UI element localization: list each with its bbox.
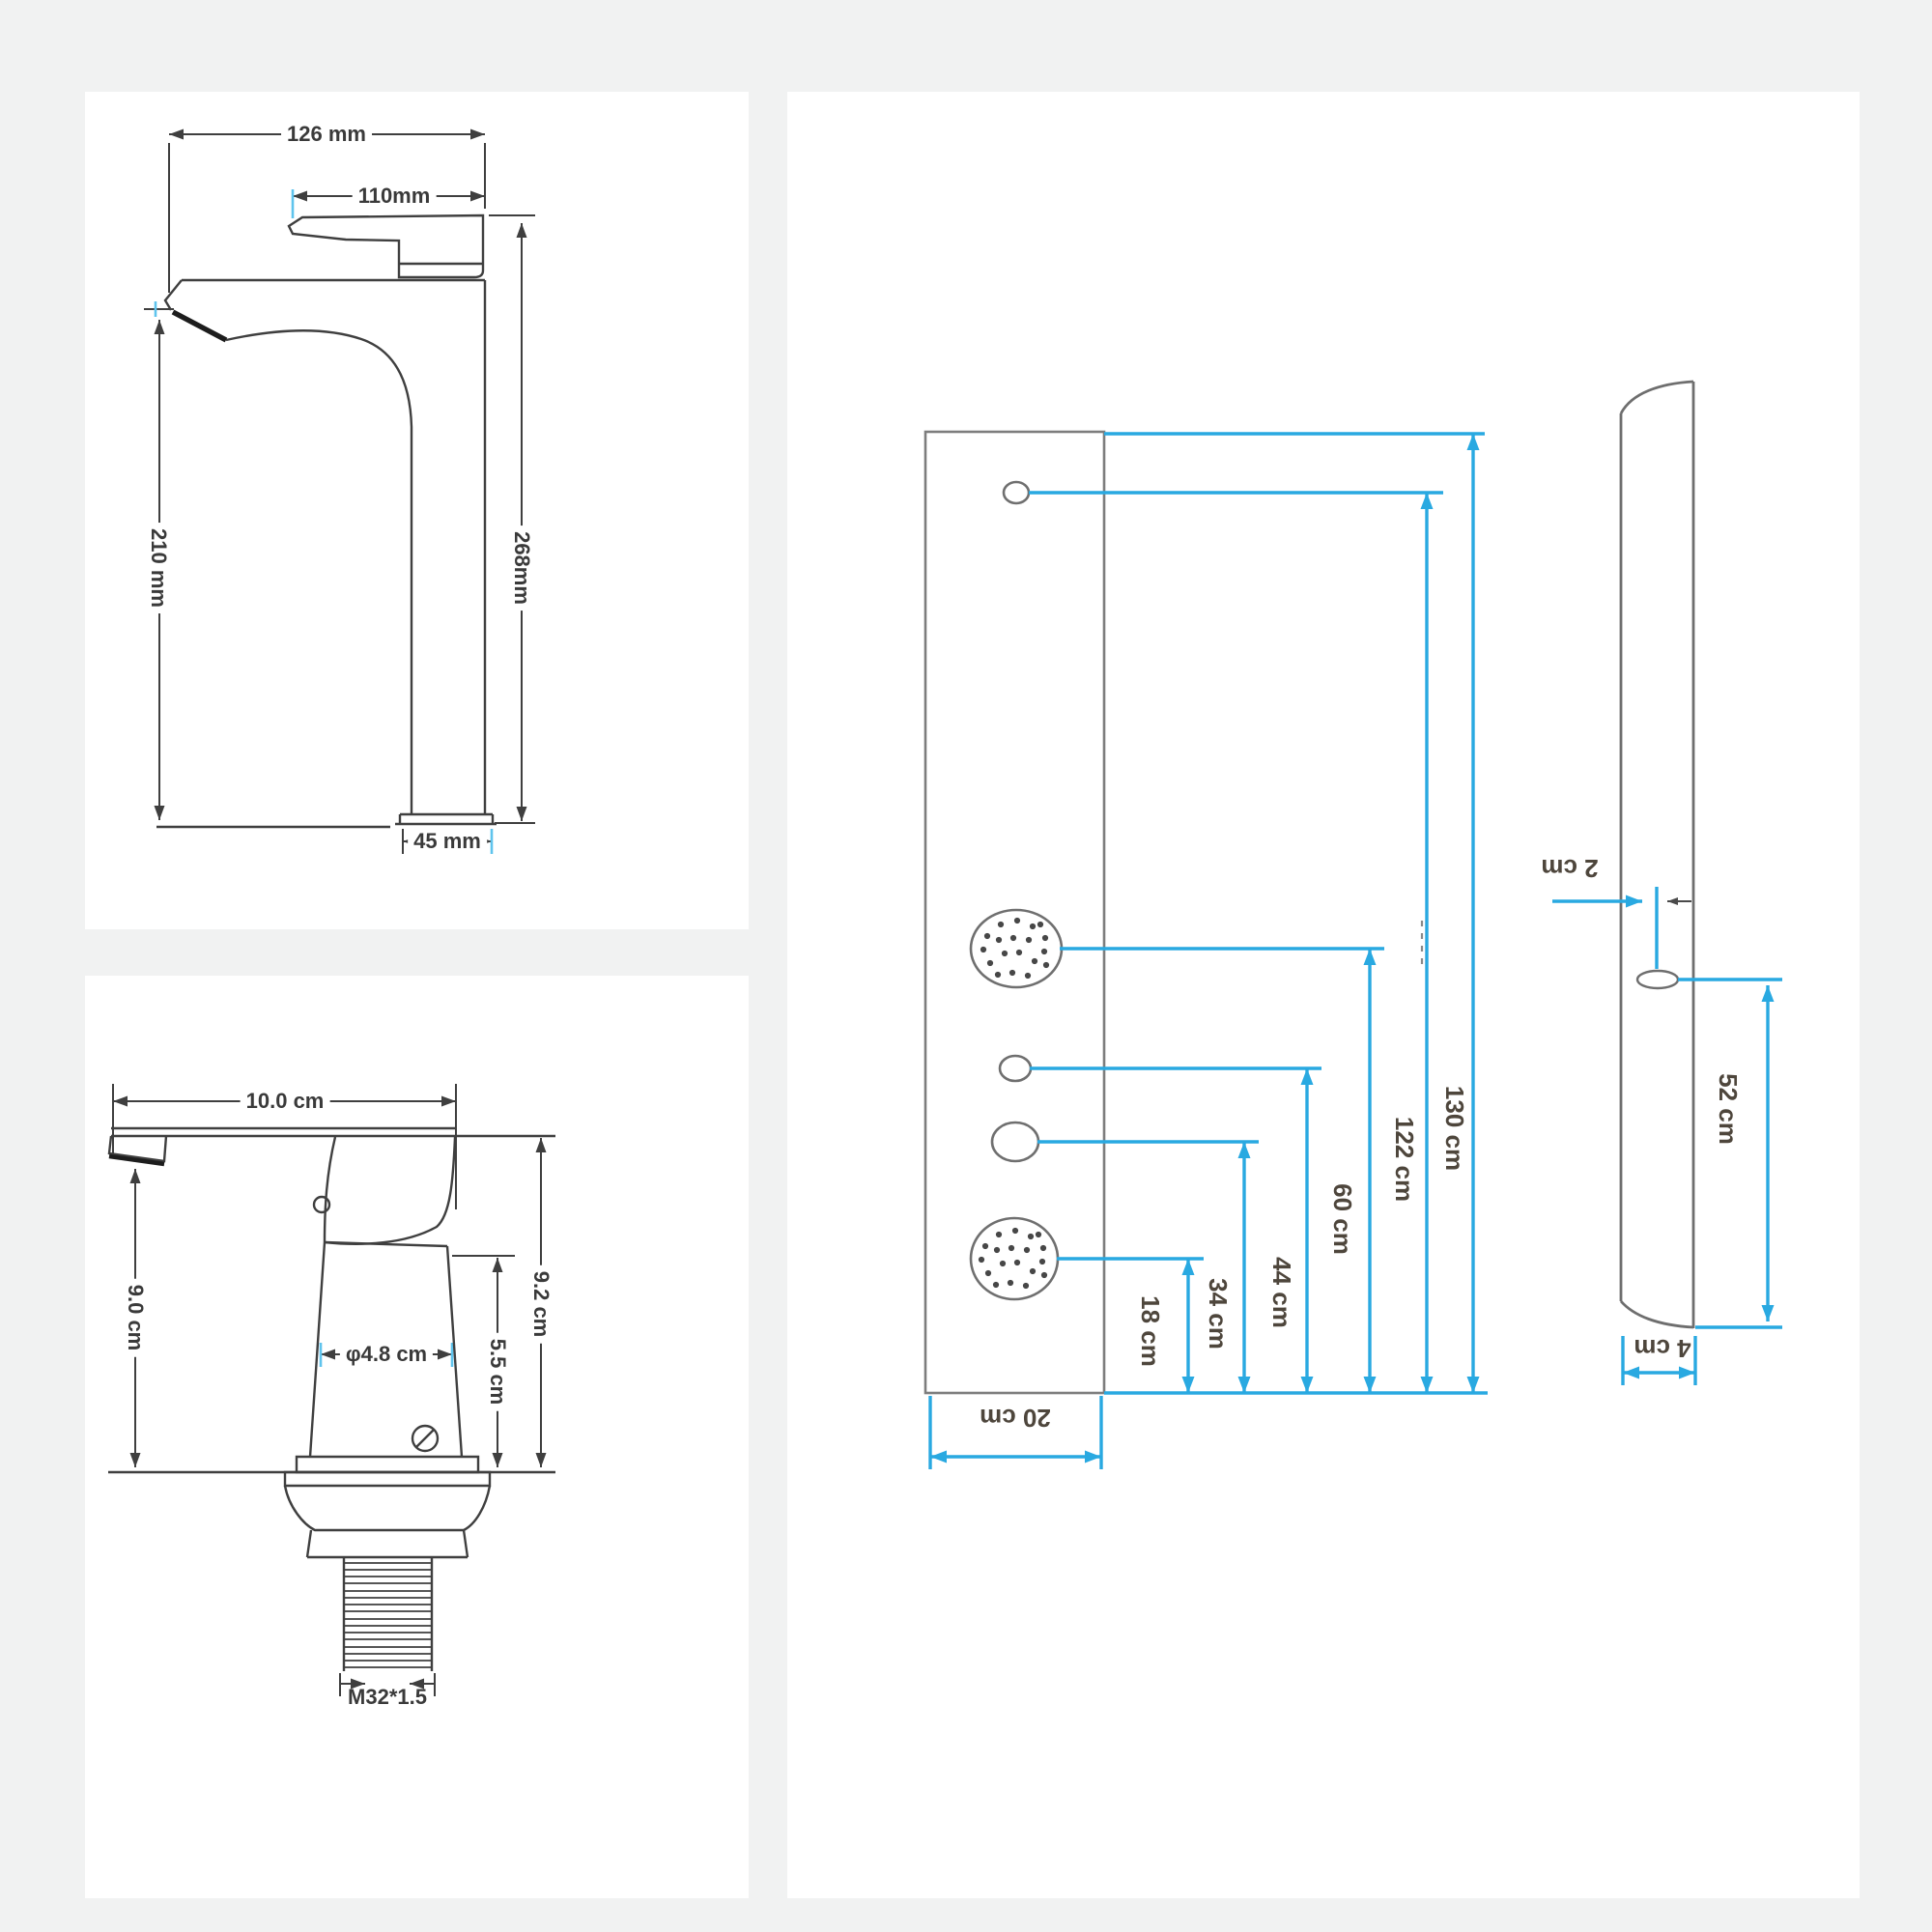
dim-total-width-tall: 126 mm [281, 123, 372, 146]
dim-shower-head-height: 60 cm [1330, 1183, 1355, 1255]
faucet-outline [156, 215, 497, 827]
dim-panel-depth: 4 cm [1634, 1336, 1690, 1361]
dim-spout-height-short: 9.0 cm [124, 1279, 147, 1357]
cyan-ticks [156, 189, 492, 854]
dim-lower-hole-height: 34 cm [1206, 1278, 1231, 1350]
shower-panel-side [1621, 382, 1693, 1328]
dim-top-hole-height: 122 cm [1392, 1117, 1417, 1202]
dim-panel-total-height: 130 cm [1442, 1086, 1467, 1171]
blue-dimension-lines [930, 434, 1782, 1469]
dimension-lines [144, 134, 535, 854]
dim-mid-hole-height: 44 cm [1269, 1257, 1294, 1328]
shower-head-dots [979, 918, 1049, 1289]
dimension-lines [113, 1084, 541, 1696]
dim-total-width-short: 10.0 cm [241, 1090, 330, 1113]
dim-handle-width: 110mm [353, 185, 437, 208]
shower-panel-front [925, 432, 1104, 1393]
dim-body-diameter: φ4.8 cm [340, 1343, 433, 1366]
dim-thread-spec: M32*1.5 [348, 1687, 427, 1708]
dim-bottom-jet-height: 18 cm [1138, 1295, 1163, 1367]
dimension-sheet: 126 mm 110mm 268mm 210 mm 45 mm 10.0 cm … [0, 0, 1932, 1932]
dim-side-hole-height: 52 cm [1716, 1073, 1741, 1145]
dim-total-height-short: 9.2 cm [529, 1265, 553, 1344]
dim-spout-height-tall: 210 mm [147, 523, 170, 613]
dim-total-height-tall: 268mm [510, 526, 533, 611]
faucet-tall-drawing [85, 92, 749, 929]
dim-panel-width: 20 cm [980, 1406, 1051, 1431]
dim-body-height: 5.5 cm [486, 1333, 509, 1411]
dim-base-width: 45 mm [408, 830, 487, 853]
dim-hole-edge-offset: 2 cm [1541, 856, 1598, 881]
faucet-short-drawing [85, 976, 749, 1898]
shower-panel-drawing [787, 92, 1860, 1898]
